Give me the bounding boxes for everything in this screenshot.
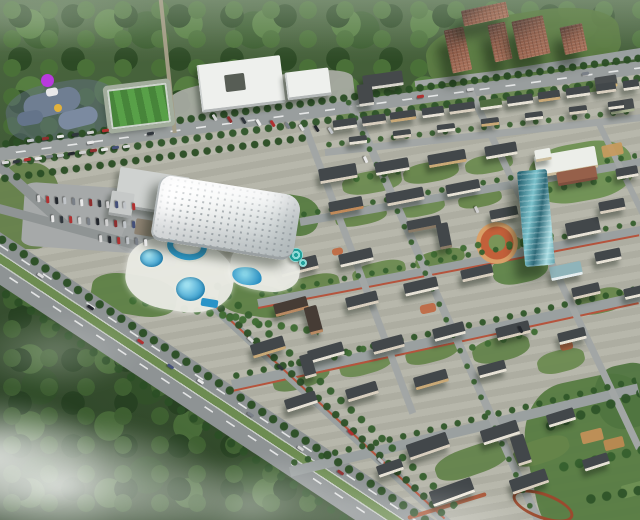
aerial-masterplan-render	[0, 0, 640, 520]
